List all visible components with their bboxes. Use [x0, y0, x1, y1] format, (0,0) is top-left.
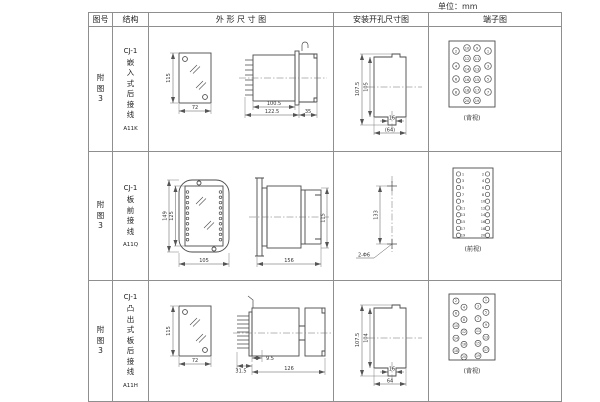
terminal-number: 8 [482, 193, 485, 197]
terminal-pin-7 [456, 192, 460, 196]
terminal-pin-16 [485, 219, 489, 223]
terminal-number: 19 [461, 234, 466, 238]
terminal-number: 19 [476, 353, 480, 357]
terminal-pin-18 [485, 226, 489, 230]
dim-slot-width: 16 [389, 366, 395, 372]
dim-cutout-inner-h: 105 [364, 82, 370, 92]
terminal-number: 7 [487, 90, 489, 94]
terminal-number: 6 [455, 311, 457, 315]
table-row: 附 图 3 CJ-1 板 前 接 线 A11Q [89, 152, 562, 281]
dim-front-width: 72 [192, 105, 198, 111]
dim-body-length: 100.5 [267, 101, 281, 107]
dim-front-width: 72 [192, 358, 198, 364]
dim-cutout-outer-h: 107.5 [355, 82, 361, 96]
mounting-cell-a11h: 107.5 104 16 64 [334, 281, 429, 402]
terminal-pin-3 [456, 179, 460, 183]
hole-spec-label: 2-Φ6 [358, 252, 370, 258]
dim-gap: 9.5 [266, 355, 274, 361]
structure-cell: CJ-1 凸 出 式 板 后 接 线 A11H [113, 281, 149, 402]
terminal-number: 10 [465, 46, 470, 50]
terminal-view-label: (背视) [464, 367, 481, 375]
dim-slot-width: 16 [389, 116, 395, 122]
terminal-pin-10 [485, 199, 489, 203]
mount-type-label: 凸 出 式 板 后 接 线 [127, 304, 135, 378]
terminal-number: 11 [476, 329, 480, 333]
fig-no-cell: 附 图 3 [89, 152, 113, 281]
dim-cutout-outer-h: 107.5 [355, 332, 361, 346]
terminal-number: 7 [462, 193, 464, 197]
header-structure: 结构 [113, 13, 149, 27]
mounting-cell-a11k: 107.5 105 16 (64) [334, 27, 429, 152]
mount-type-label: 嵌 入 式 后 接 线 [127, 58, 135, 121]
terminal-pin-9 [456, 199, 460, 203]
terminal-number: 4 [482, 179, 485, 183]
terminal-pin-2 [485, 172, 489, 176]
header-terminal: 端子图 [429, 13, 562, 27]
dim-front-height: 115 [166, 326, 172, 336]
terminal-number: 9 [476, 46, 479, 50]
model-label: A11Q [123, 242, 138, 248]
terminal-number: 20 [465, 99, 470, 103]
terminal-number: 7 [477, 316, 479, 320]
terminal-number: 12 [465, 57, 470, 61]
terminal-pins [245, 60, 253, 95]
terminal-number: 16 [481, 220, 486, 224]
terminal-number: 5 [485, 310, 487, 314]
datasheet-page: 单位：mm 图号 结构 外 形 尺 寸 图 安装开孔尺寸图 端子图 附 图 3 … [0, 0, 600, 400]
terminal-number: 6 [482, 186, 485, 190]
dim-front-width: 105 [199, 258, 209, 264]
terminal-number: 16 [465, 78, 470, 82]
front-terminal-dots [186, 191, 222, 241]
terminal-number: 14 [481, 213, 486, 217]
header-outline: 外 形 尺 寸 图 [149, 13, 334, 27]
terminal-number: 2 [455, 299, 457, 303]
structure-cell: CJ-1 嵌 入 式 后 接 线 A11K [113, 27, 149, 152]
dim-flange-length: 35 [305, 109, 311, 115]
mounting-drawing-a11h: 107.5 104 16 64 [334, 282, 428, 401]
outline-cell-a11k: 115 72 100.5 122. [149, 27, 334, 152]
structure-cell: CJ-1 板 前 接 线 A11Q [113, 152, 149, 281]
terminal-number: 12 [462, 330, 466, 334]
fig-no-label: 附 图 3 [89, 325, 112, 357]
terminal-number: 15 [476, 341, 480, 345]
series-label: CJ-1 [124, 293, 138, 301]
fig-no-cell: 附 图 3 [89, 281, 113, 402]
terminal-number: 10 [454, 323, 458, 327]
terminal-pins [237, 316, 249, 348]
terminal-view-label: (前视) [465, 245, 482, 253]
terminal-pin-14 [485, 213, 489, 217]
outline-drawing-a11h: 115 72 9.5 [149, 282, 333, 401]
dim-front-height: 115 [166, 73, 172, 83]
terminal-number: 17 [461, 227, 466, 231]
table-row: 附 图 3 CJ-1 嵌 入 式 后 接 线 A11K [89, 27, 562, 152]
model-label: A11K [123, 126, 137, 132]
fig-no-cell: 附 图 3 [89, 27, 113, 152]
terminal-pin-12 [485, 206, 489, 210]
terminal-number: 4 [455, 64, 458, 68]
table-row: 附 图 3 CJ-1 凸 出 式 板 后 接 线 A11H [89, 281, 562, 402]
terminal-number: 12 [481, 206, 486, 210]
header-fig-no: 图号 [89, 13, 113, 27]
terminal-number: 17 [475, 88, 480, 92]
terminal-number: 14 [454, 336, 458, 340]
series-label: CJ-1 [124, 184, 138, 192]
terminal-pin-5 [456, 185, 460, 189]
terminal-number: 1 [485, 298, 487, 302]
outline-cell-a11q: 149 125 105 1 [149, 152, 334, 281]
terminal-number: 15 [461, 220, 466, 224]
terminal-cell-a11q: (前视) 1357911131517192468101214161820 [429, 152, 562, 281]
mounting-cell-a11q: 133 2-Φ6 [334, 152, 429, 281]
terminal-number: 1 [462, 172, 464, 176]
terminal-number: 18 [454, 348, 458, 352]
terminal-number: 20 [481, 234, 486, 238]
terminal-pin-4 [485, 179, 489, 183]
dim-cutout-width: (64) [385, 127, 395, 133]
terminal-number: 1 [487, 49, 489, 53]
mirror-hatch-icon [190, 65, 206, 90]
units-label: 单位：mm [438, 1, 478, 12]
outline-cell-a11h: 115 72 9.5 [149, 281, 334, 402]
terminal-number: 13 [475, 67, 480, 71]
outline-drawing-a11k: 115 72 100.5 122. [149, 27, 333, 151]
mirror-hatch-icon [190, 318, 206, 343]
mounting-drawing-a11k: 107.5 105 16 (64) [334, 27, 428, 151]
dim-body-length: 126 [284, 366, 294, 372]
terminal-number: 13 [461, 213, 466, 217]
dim-side-height: 115 [321, 213, 327, 223]
terminal-number: 19 [475, 99, 480, 103]
spec-table: 图号 结构 外 形 尺 寸 图 安装开孔尺寸图 端子图 附 图 3 CJ-1 嵌… [88, 12, 562, 402]
terminal-diagram-a11k: (背视) 2468101214161820911131517191357 [429, 27, 561, 151]
dim-hole-distance: 133 [374, 210, 380, 220]
terminal-number: 10 [481, 200, 486, 204]
dim-body-length: 156 [284, 258, 294, 264]
mirror-hatch-icon [196, 197, 214, 230]
terminal-number: 3 [477, 304, 479, 308]
terminal-number: 16 [462, 342, 466, 346]
terminal-pin-1 [456, 172, 460, 176]
terminal-cell-a11h: (背视) 2468101214161820135791113151719 [429, 281, 562, 402]
terminal-number: 17 [484, 347, 488, 351]
terminal-number: 2 [482, 172, 484, 176]
header-row: 图号 结构 外 形 尺 寸 图 安装开孔尺寸图 端子图 [89, 13, 562, 27]
dim-pin-length: 31.5 [235, 368, 246, 374]
terminal-diagram-a11h: (背视) 2468101214161820135791113151719 [429, 282, 561, 401]
terminal-number: 8 [455, 90, 458, 94]
terminal-pin-20 [485, 233, 489, 237]
model-label: A11H [123, 383, 138, 389]
terminal-number: 5 [487, 77, 489, 81]
terminal-number: 9 [485, 322, 487, 326]
terminal-pin-6 [485, 185, 489, 189]
dim-cutout-inner-h: 104 [364, 333, 370, 343]
terminal-number: 2 [455, 49, 457, 53]
terminal-cell-a11k: (背视) 2468101214161820911131517191357 [429, 27, 562, 152]
terminal-number: 18 [481, 227, 486, 231]
terminal-number: 3 [462, 179, 464, 183]
terminal-number: 18 [465, 88, 470, 92]
fig-no-label: 附 图 3 [89, 73, 112, 105]
terminal-number: 11 [461, 206, 466, 210]
fig-no-label: 附 图 3 [89, 200, 112, 232]
dim-front-height: 149 [163, 211, 169, 221]
header-mounting: 安装开孔尺寸图 [334, 13, 429, 27]
terminal-number: 11 [475, 57, 480, 61]
series-label: CJ-1 [124, 47, 138, 55]
terminal-number: 6 [455, 77, 458, 81]
terminal-view-label: (背视) [464, 114, 481, 122]
mount-type-label: 板 前 接 线 [127, 195, 135, 237]
terminal-number: 15 [475, 78, 480, 82]
dim-cutout-width: 64 [387, 378, 393, 384]
outline-drawing-a11q: 149 125 105 1 [149, 152, 333, 280]
terminal-pin-8 [485, 192, 489, 196]
mounting-drawing-a11q: 133 2-Φ6 [334, 152, 428, 280]
terminal-number: 14 [465, 67, 470, 71]
terminal-number: 9 [462, 200, 465, 204]
terminal-number: 20 [462, 354, 466, 358]
terminal-number: 8 [463, 317, 465, 321]
terminal-number: 13 [484, 335, 488, 339]
terminal-number: 5 [462, 186, 464, 190]
terminal-number: 3 [487, 64, 489, 68]
terminal-number: 4 [463, 305, 465, 309]
dim-inner-height: 125 [169, 211, 175, 221]
terminal-diagram-a11q: (前视) 1357911131517192468101214161820 [429, 152, 561, 280]
dim-total-length: 122.5 [265, 109, 279, 115]
